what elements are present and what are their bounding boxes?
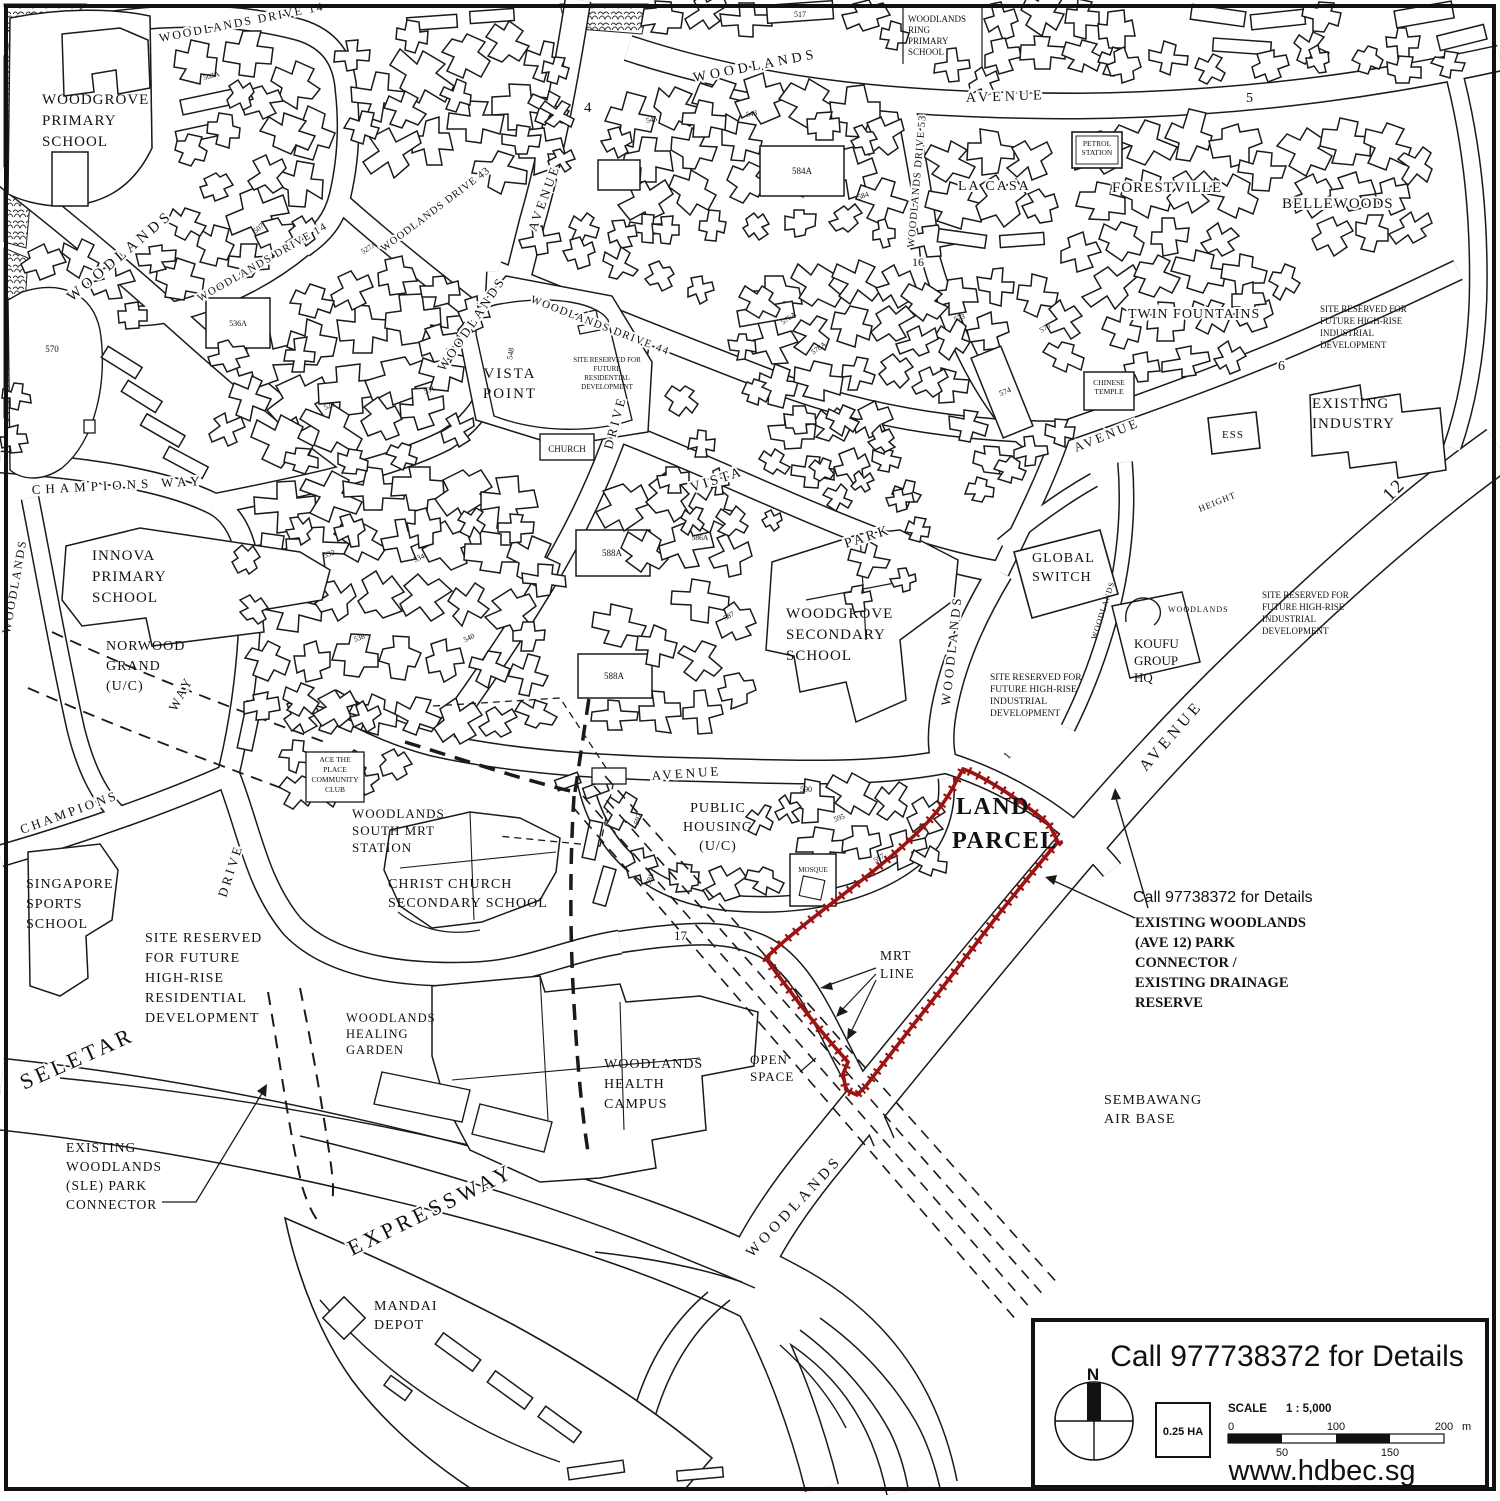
svg-text:570: 570 [45, 344, 59, 354]
svg-text:HOUSING: HOUSING [683, 820, 753, 835]
svg-text:N: N [1087, 1365, 1099, 1384]
svg-text:SINGAPORE: SINGAPORE [26, 877, 114, 892]
svg-text:MOSQUE: MOSQUE [798, 866, 828, 874]
svg-text:STATION: STATION [352, 840, 412, 855]
svg-text:SOUTH MRT: SOUTH MRT [352, 823, 435, 838]
svg-text:WOODLANDS: WOODLANDS [352, 806, 445, 821]
svg-text:SCHOOL: SCHOOL [786, 648, 852, 664]
svg-text:GLOBAL: GLOBAL [1032, 551, 1095, 566]
svg-text:DEVELOPMENT: DEVELOPMENT [581, 383, 633, 391]
svg-text:4: 4 [584, 100, 592, 116]
svg-text:PETROL: PETROL [1083, 139, 1112, 148]
svg-text:LA CASA: LA CASA [958, 179, 1031, 194]
svg-text:SECONDARY SCHOOL: SECONDARY SCHOOL [388, 896, 548, 911]
svg-text:EXISTING WOODLANDS: EXISTING WOODLANDS [1135, 915, 1306, 931]
svg-text:AIR BASE: AIR BASE [1104, 1112, 1175, 1127]
svg-text:PRIMARY: PRIMARY [42, 113, 117, 129]
svg-text:16: 16 [912, 255, 924, 269]
svg-text:RESERVE: RESERVE [1135, 995, 1203, 1011]
svg-text:TWIN FOUNTAINS: TWIN FOUNTAINS [1128, 307, 1260, 322]
svg-text:SITE RESERVED FOR: SITE RESERVED FOR [990, 673, 1082, 683]
svg-text:CLUB: CLUB [325, 785, 345, 794]
svg-text:SCHOOL: SCHOOL [42, 134, 108, 150]
svg-text:PARCEL: PARCEL [952, 828, 1058, 854]
svg-text:PLACE: PLACE [323, 765, 347, 774]
svg-text:WOODLANDS: WOODLANDS [604, 1057, 703, 1072]
svg-text:EXISTING: EXISTING [1312, 396, 1389, 412]
svg-text:RING: RING [908, 25, 930, 35]
svg-text:CHURCH: CHURCH [548, 444, 586, 454]
svg-text:536A: 536A [229, 319, 247, 328]
svg-text:INDUSTRIAL: INDUSTRIAL [1262, 614, 1316, 624]
svg-text:WOODLANDS: WOODLANDS [908, 14, 966, 24]
svg-text:NORWOOD: NORWOOD [106, 639, 185, 654]
svg-text:200: 200 [1435, 1421, 1453, 1433]
svg-text:SCHOOL: SCHOOL [92, 590, 158, 606]
svg-text:(AVE 12) PARK: (AVE 12) PARK [1135, 935, 1236, 951]
svg-text:(SLE) PARK: (SLE) PARK [66, 1178, 147, 1193]
svg-text:HQ: HQ [1134, 670, 1153, 685]
svg-text:CONNECTOR /: CONNECTOR / [1135, 955, 1238, 971]
svg-text:POINT: POINT [483, 386, 537, 402]
svg-text:m: m [1462, 1421, 1471, 1433]
svg-text:CHINESE: CHINESE [1093, 378, 1125, 387]
svg-text:WOODLANDS: WOODLANDS [66, 1159, 162, 1174]
svg-text:588A: 588A [602, 548, 623, 558]
svg-text:SITE RESERVED FOR: SITE RESERVED FOR [1320, 304, 1407, 314]
svg-text:100: 100 [1327, 1421, 1345, 1433]
svg-text:HEALING: HEALING [346, 1027, 409, 1041]
svg-text:AVENUE: AVENUE [966, 88, 1046, 106]
svg-text:DEVELOPMENT: DEVELOPMENT [145, 1011, 259, 1026]
svg-text:MRT: MRT [880, 948, 911, 963]
svg-text:FUTURE HIGH-RISE: FUTURE HIGH-RISE [1262, 602, 1345, 612]
svg-text:1 : 5,000: 1 : 5,000 [1286, 1403, 1331, 1415]
svg-text:VISTA: VISTA [484, 366, 537, 382]
svg-text:OPEN: OPEN [750, 1052, 788, 1067]
svg-text:HIGH-RISE: HIGH-RISE [145, 971, 224, 986]
svg-text:(U/C): (U/C) [699, 839, 737, 854]
svg-text:FUTURE HIGH-RISE: FUTURE HIGH-RISE [1320, 316, 1403, 326]
svg-text:INDUSTRY: INDUSTRY [1312, 416, 1395, 432]
svg-text:SITE RESERVED: SITE RESERVED [145, 931, 262, 946]
svg-text:ACE THE: ACE THE [319, 755, 351, 764]
svg-text:TEMPLE: TEMPLE [1094, 387, 1124, 396]
svg-text:FUTURE HIGH-RISE: FUTURE HIGH-RISE [990, 685, 1077, 695]
svg-text:CONNECTOR: CONNECTOR [66, 1197, 157, 1212]
svg-text:DEVELOPMENT: DEVELOPMENT [1262, 626, 1329, 636]
svg-text:PUBLIC: PUBLIC [690, 801, 746, 816]
svg-text:(U/C): (U/C) [106, 679, 144, 694]
svg-text:SPORTS: SPORTS [26, 897, 83, 912]
svg-text:PRIMARY: PRIMARY [908, 36, 949, 46]
svg-text:584A: 584A [792, 166, 813, 176]
svg-text:586A: 586A [692, 533, 709, 542]
svg-text:RESIDENTIAL: RESIDENTIAL [145, 991, 247, 1006]
svg-text:FORESTVILLE: FORESTVILLE [1112, 180, 1222, 196]
svg-text:SITE RESERVED FOR: SITE RESERVED FOR [1262, 590, 1349, 600]
svg-text:0: 0 [1228, 1421, 1234, 1433]
svg-text:HEALTH: HEALTH [604, 1077, 665, 1092]
svg-text:GARDEN: GARDEN [346, 1043, 404, 1057]
svg-text:SITE RESERVED FOR: SITE RESERVED FOR [573, 356, 641, 364]
svg-text:INDUSTRIAL: INDUSTRIAL [990, 697, 1047, 707]
svg-text:DEVELOPMENT: DEVELOPMENT [1320, 340, 1387, 350]
svg-text:GRAND: GRAND [106, 659, 161, 674]
svg-text:WOODGROVE: WOODGROVE [42, 92, 149, 108]
svg-text:STATION: STATION [1082, 148, 1113, 157]
svg-text:EXISTING: EXISTING [66, 1140, 136, 1155]
svg-text:PRIMARY: PRIMARY [92, 569, 167, 585]
svg-text:6: 6 [1278, 359, 1285, 374]
svg-text:ESS: ESS [1222, 429, 1244, 441]
svg-text:590: 590 [800, 785, 812, 794]
svg-text:www.hdbec.sg: www.hdbec.sg [1228, 1455, 1416, 1487]
svg-text:WOODGROVE: WOODGROVE [786, 606, 893, 622]
svg-text:WOODLANDS: WOODLANDS [346, 1011, 436, 1025]
svg-text:EXISTING DRAINAGE: EXISTING DRAINAGE [1135, 975, 1289, 991]
svg-text:517: 517 [794, 10, 806, 19]
svg-text:INNOVA: INNOVA [92, 548, 155, 564]
svg-text:SCALE: SCALE [1228, 1403, 1267, 1415]
svg-text:17: 17 [674, 928, 688, 943]
svg-text:INDUSTRIAL: INDUSTRIAL [1320, 328, 1374, 338]
svg-text:BELLEWOODS: BELLEWOODS [1282, 196, 1394, 212]
svg-text:WOODLANDS: WOODLANDS [1168, 605, 1229, 614]
svg-text:5: 5 [1246, 91, 1253, 106]
svg-text:CAMPUS: CAMPUS [604, 1097, 668, 1112]
svg-text:588A: 588A [604, 671, 625, 681]
svg-text:DEVELOPMENT: DEVELOPMENT [990, 709, 1060, 719]
svg-text:RESIDENTIAL: RESIDENTIAL [584, 374, 630, 382]
svg-text:SCHOOL: SCHOOL [26, 917, 88, 932]
svg-text:KOUFU: KOUFU [1134, 636, 1179, 651]
svg-text:SWITCH: SWITCH [1032, 570, 1092, 585]
svg-text:COMMUNITY: COMMUNITY [311, 775, 359, 784]
svg-text:MANDAI: MANDAI [374, 1299, 438, 1314]
svg-text:CHRIST CHURCH: CHRIST CHURCH [388, 877, 512, 892]
svg-text:FOR FUTURE: FOR FUTURE [145, 951, 240, 966]
svg-text:Call 977738372 for Details: Call 977738372 for Details [1110, 1340, 1464, 1373]
svg-text:SECONDARY: SECONDARY [786, 627, 886, 643]
svg-text:LAND: LAND [956, 794, 1030, 820]
svg-text:SEMBAWANG: SEMBAWANG [1104, 1093, 1202, 1108]
svg-text:FUTURE: FUTURE [593, 365, 620, 373]
svg-text:DEPOT: DEPOT [374, 1318, 424, 1333]
svg-text:Call 97738372 for Details: Call 97738372 for Details [1133, 889, 1313, 906]
svg-text:GROUP: GROUP [1134, 653, 1178, 668]
svg-text:SPACE: SPACE [750, 1069, 794, 1084]
svg-text:0.25 HA: 0.25 HA [1163, 1426, 1203, 1438]
svg-text:LINE: LINE [880, 966, 915, 981]
svg-text:SCHOOL: SCHOOL [908, 47, 944, 57]
